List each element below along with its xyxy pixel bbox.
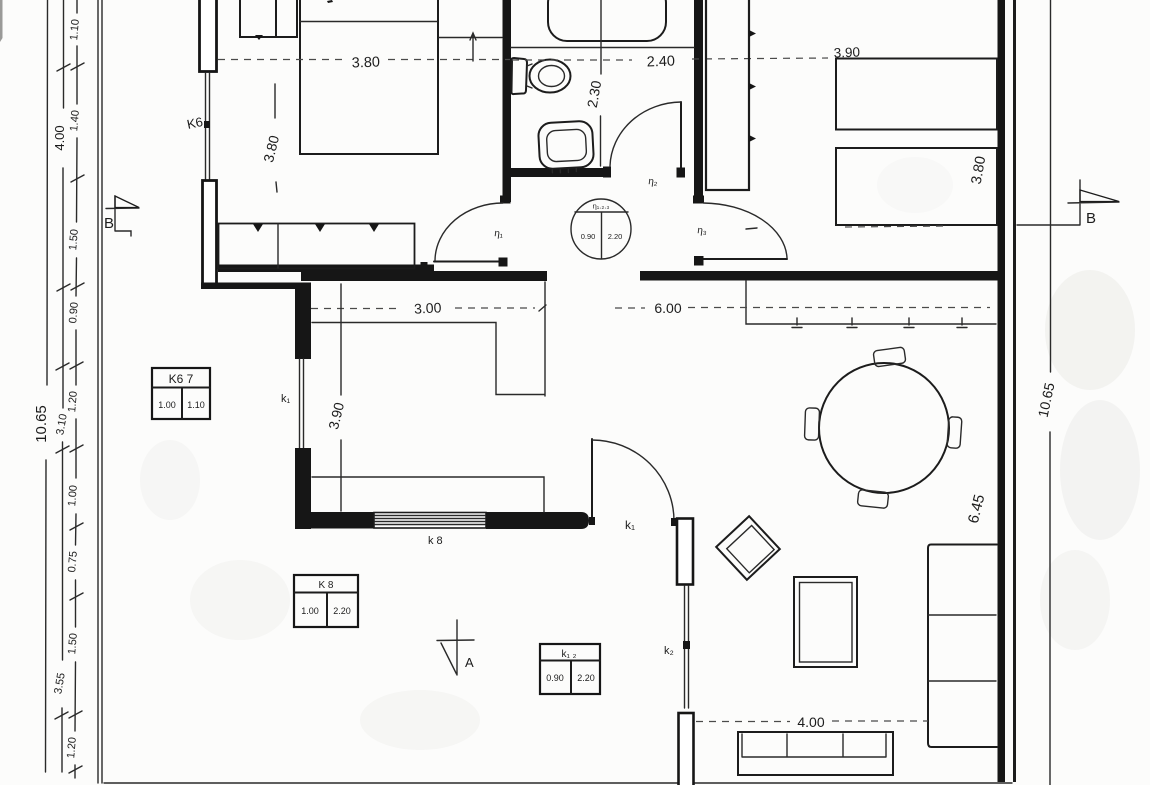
- svg-text:K 8: K 8: [318, 580, 333, 591]
- svg-text:6.00: 6.00: [654, 300, 681, 316]
- svg-text:η₁.₂.₃: η₁.₂.₃: [593, 202, 610, 211]
- svg-text:2.20: 2.20: [608, 232, 623, 241]
- svg-text:1.00: 1.00: [301, 606, 319, 616]
- svg-text:1.00: 1.00: [158, 400, 176, 410]
- svg-text:η₃: η₃: [697, 225, 708, 237]
- svg-text:1.50: 1.50: [66, 633, 80, 655]
- svg-text:1.50: 1.50: [67, 229, 81, 251]
- svg-text:k₁: k₁: [281, 393, 291, 405]
- svg-text:A: A: [465, 655, 474, 670]
- svg-text:3.80: 3.80: [351, 55, 380, 72]
- svg-text:1.20: 1.20: [65, 737, 79, 759]
- svg-text:2.40: 2.40: [646, 54, 675, 71]
- svg-text:2.20: 2.20: [577, 673, 595, 683]
- svg-text:4.00: 4.00: [797, 714, 824, 730]
- svg-text:1.40: 1.40: [68, 110, 82, 132]
- svg-text:3.00: 3.00: [414, 299, 442, 316]
- svg-text:k₂: k₂: [664, 645, 674, 657]
- svg-text:1.10: 1.10: [68, 19, 82, 41]
- svg-text:0.75: 0.75: [66, 551, 80, 573]
- svg-text:0.90: 0.90: [581, 232, 596, 241]
- svg-text:0.90: 0.90: [546, 673, 564, 683]
- svg-text:1.00: 1.00: [66, 485, 80, 507]
- svg-text:η₂: η₂: [648, 176, 659, 188]
- svg-text:10.65: 10.65: [33, 405, 50, 443]
- svg-text:k 8: k 8: [428, 535, 443, 547]
- svg-text:K6 7: K6 7: [169, 372, 194, 386]
- svg-text:k₁: k₁: [625, 518, 635, 532]
- svg-text:1.10: 1.10: [187, 400, 205, 410]
- svg-text:1.20: 1.20: [66, 391, 80, 413]
- svg-text:4.00: 4.00: [52, 125, 67, 150]
- svg-text:B: B: [104, 215, 114, 232]
- svg-text:k₁ ₂: k₁ ₂: [561, 649, 576, 660]
- svg-text:B: B: [1086, 210, 1096, 227]
- svg-text:0.90: 0.90: [67, 302, 81, 324]
- svg-text:2.20: 2.20: [333, 606, 351, 616]
